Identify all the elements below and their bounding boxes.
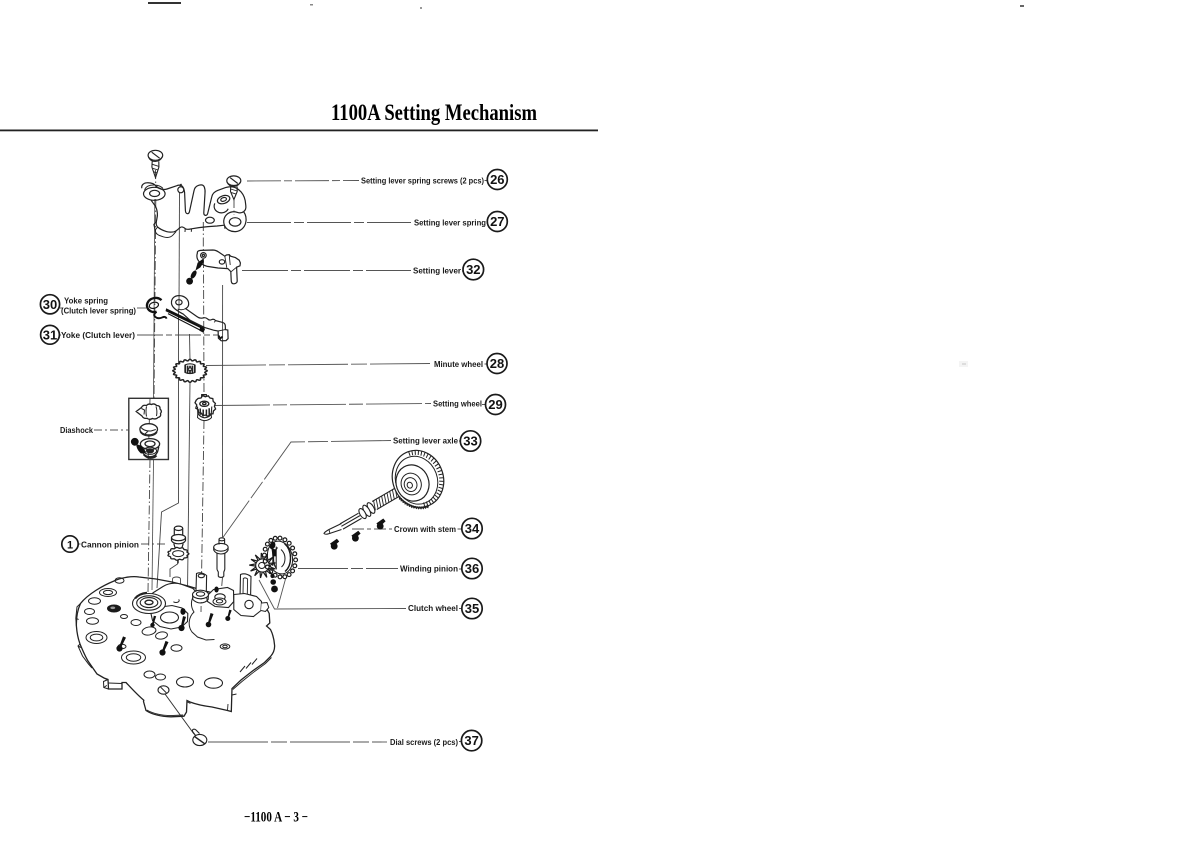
svg-text:1100A Setting Mechanism: 1100A Setting Mechanism <box>331 100 537 125</box>
svg-text:Clutch wheel: Clutch wheel <box>408 604 458 613</box>
svg-text:Dial screws (2 pcs): Dial screws (2 pcs) <box>390 738 458 747</box>
svg-text:Yoke (Clutch lever): Yoke (Clutch lever) <box>61 331 135 340</box>
svg-text:Diashock: Diashock <box>60 426 94 435</box>
svg-text:Setting lever axle: Setting lever axle <box>393 437 459 446</box>
svg-text:36: 36 <box>465 561 479 576</box>
svg-text:Setting lever spring screws (2: Setting lever spring screws (2 pcs) <box>361 177 484 186</box>
svg-text:1: 1 <box>67 540 73 552</box>
svg-text:35: 35 <box>465 601 479 616</box>
svg-text:31: 31 <box>43 327 57 342</box>
svg-text:34: 34 <box>465 521 480 536</box>
svg-text:Winding pinion: Winding pinion <box>400 565 458 574</box>
svg-text:27: 27 <box>490 214 504 229</box>
svg-text:(Clutch lever spring): (Clutch lever spring) <box>61 307 136 316</box>
svg-text:30: 30 <box>43 297 57 312</box>
svg-text:Setting lever spring: Setting lever spring <box>414 219 486 228</box>
svg-text:29: 29 <box>488 397 502 412</box>
svg-text:Setting wheel: Setting wheel <box>433 400 482 409</box>
svg-text:Crown with stem: Crown with stem <box>394 525 456 534</box>
svg-text:Yoke spring: Yoke spring <box>64 297 108 306</box>
svg-text:37: 37 <box>464 733 478 748</box>
svg-text:−1100 A − 3 −: −1100 A − 3 − <box>244 810 308 826</box>
svg-text:Minute wheel: Minute wheel <box>434 360 483 369</box>
svg-text:32: 32 <box>466 262 480 277</box>
svg-text:26: 26 <box>490 172 504 187</box>
svg-text:28: 28 <box>490 356 504 371</box>
svg-text:Setting lever: Setting lever <box>413 267 461 276</box>
svg-text:Cannon pinion: Cannon pinion <box>81 541 139 550</box>
svg-text:33: 33 <box>463 434 477 449</box>
